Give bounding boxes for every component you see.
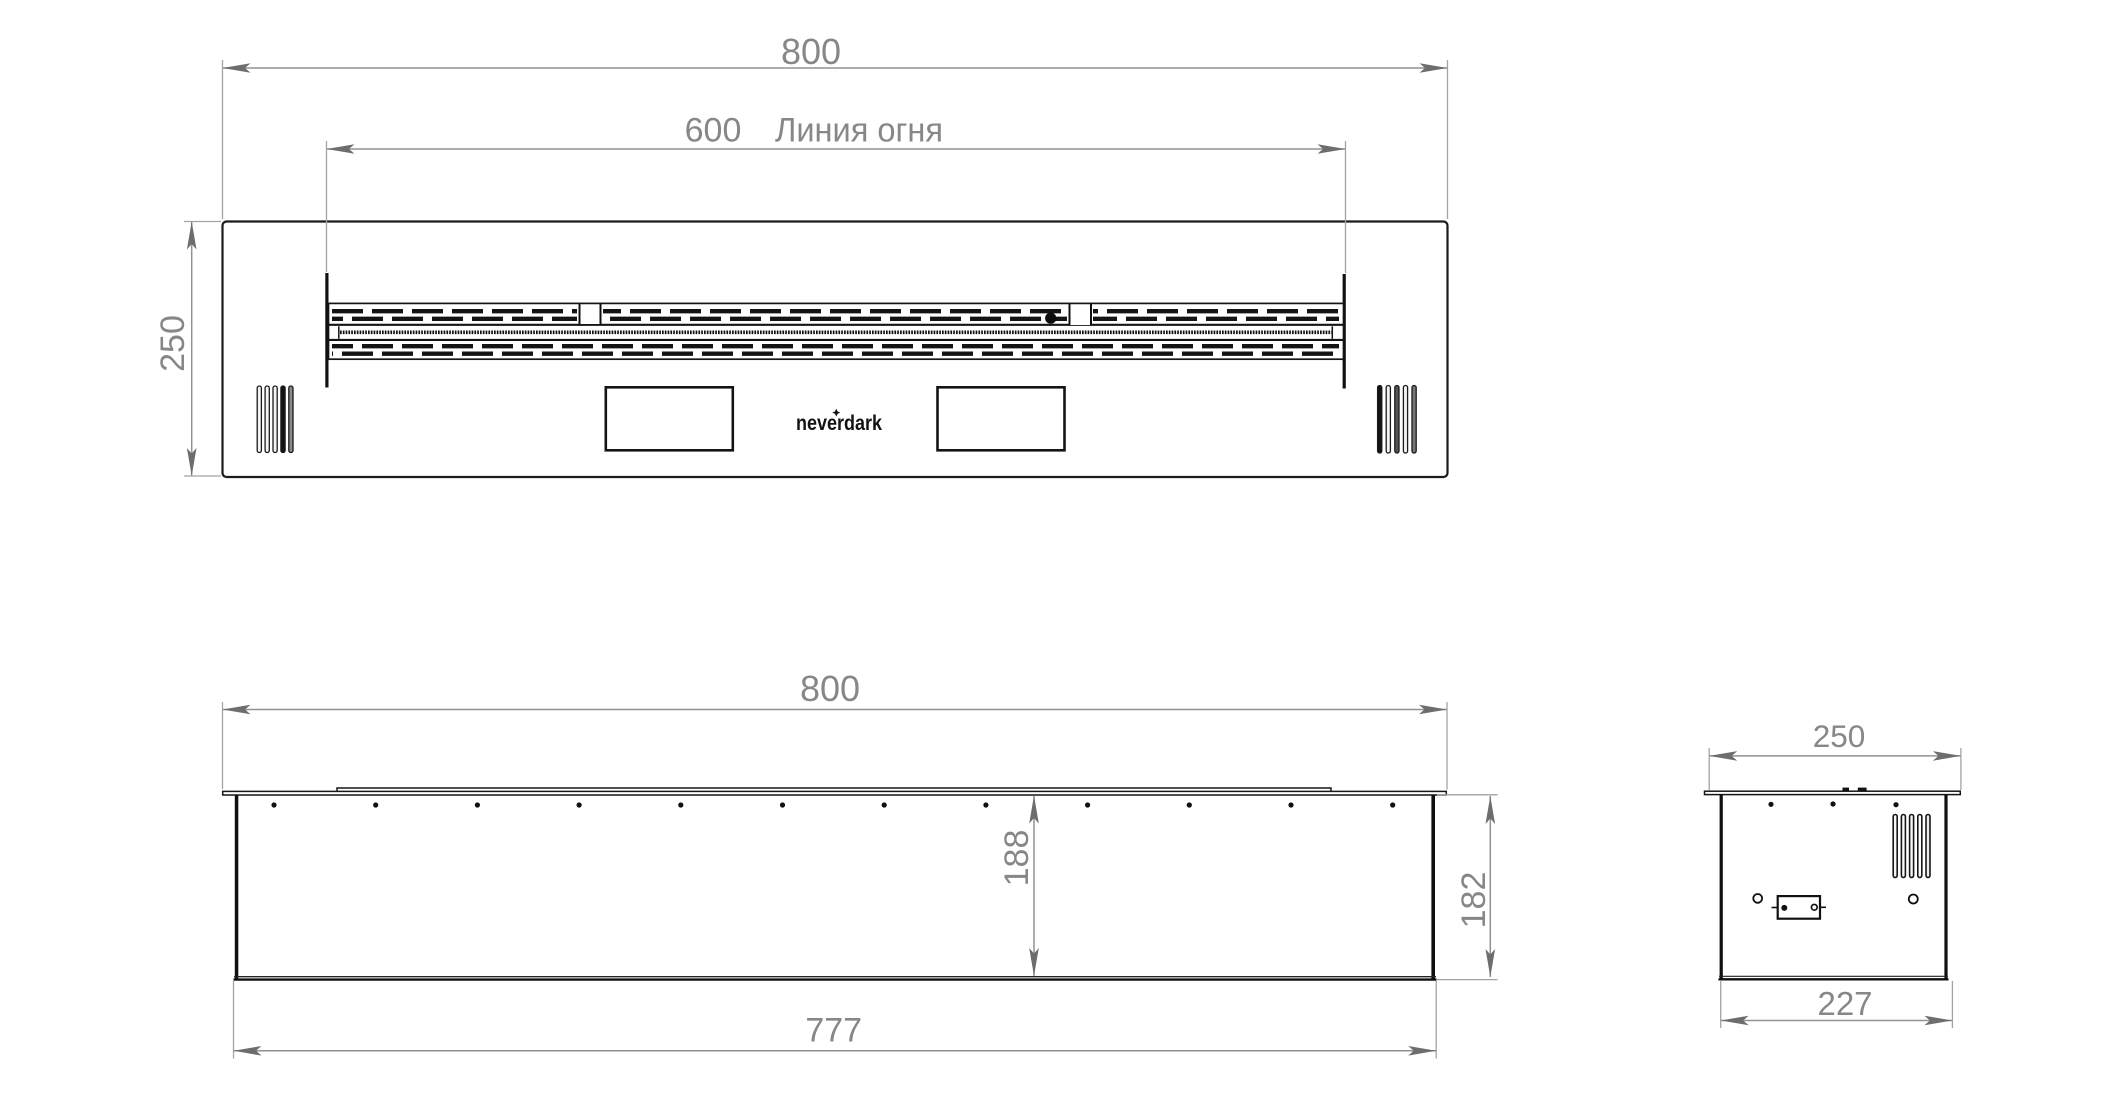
svg-text:Линия огня: Линия огня [775,112,943,150]
svg-text:800: 800 [781,31,841,72]
svg-text:250: 250 [154,315,192,372]
svg-text:250: 250 [1813,718,1866,754]
svg-text:800: 800 [800,668,860,709]
svg-text:188: 188 [998,830,1036,887]
svg-text:600: 600 [685,112,742,150]
svg-text:227: 227 [1817,985,1872,1022]
svg-text:182: 182 [1455,872,1493,929]
svg-text:777: 777 [805,1012,862,1050]
svg-text:neverdark: neverdark [796,412,882,435]
